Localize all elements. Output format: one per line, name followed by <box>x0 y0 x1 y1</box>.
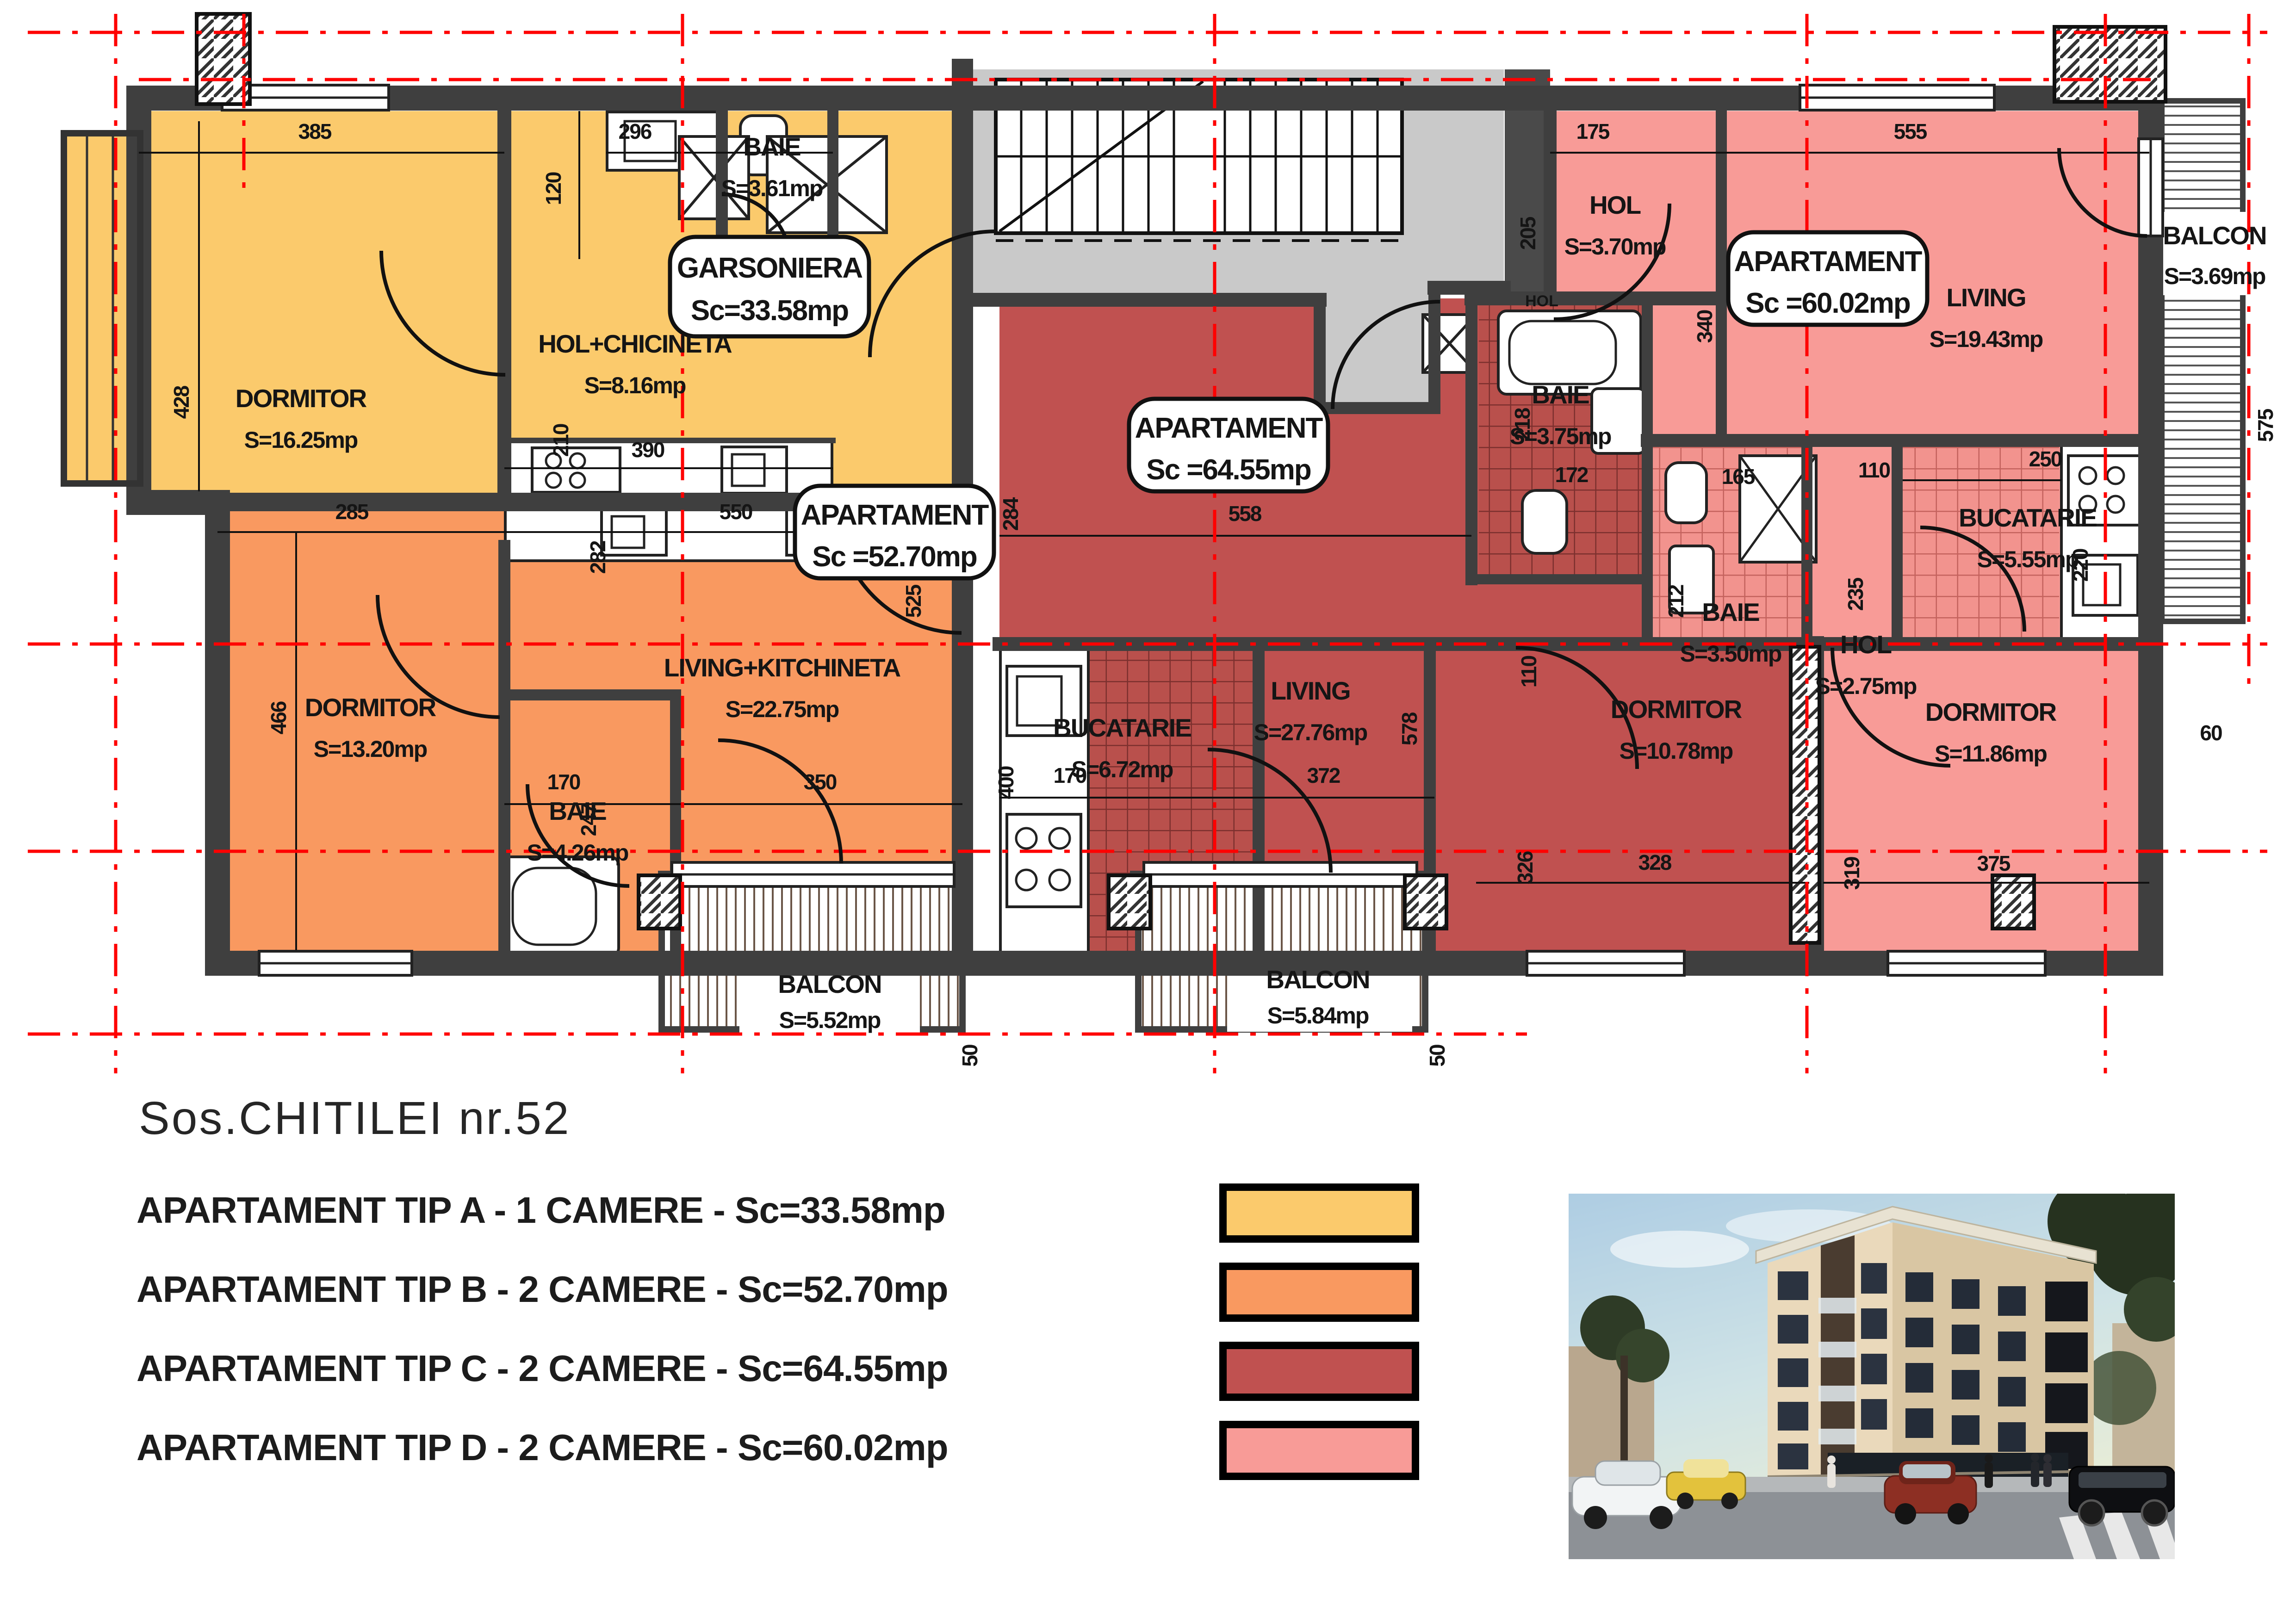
room-area: S=22.75mp <box>726 696 839 722</box>
dimension-label: 555 <box>1894 119 1927 143</box>
dimension-label: 375 <box>1977 851 2011 875</box>
room-area: S=11.86mp <box>1935 741 2047 767</box>
room-label: HOL <box>1840 630 1892 659</box>
room-area: S=8.16mp <box>584 372 686 398</box>
apartment-label: APARTAMENT <box>801 499 989 531</box>
room-label: BAIE <box>743 132 800 161</box>
room-area: S=16.25mp <box>244 427 358 453</box>
dimension-label: 558 <box>1229 502 1262 526</box>
dimension-label: 175 <box>1576 119 1610 143</box>
dimension-label: 235 <box>1843 577 1868 611</box>
dimension-label: 172 <box>1555 463 1588 487</box>
dimension-label: 400 <box>994 766 1018 799</box>
dimension-label: 285 <box>335 500 369 524</box>
dimension-label: 350 <box>804 770 837 794</box>
room-area: S=5.52mp <box>779 1007 881 1033</box>
room-label: DORMITOR <box>1611 695 1742 724</box>
legend-swatch-b <box>1219 1263 1419 1322</box>
legend-row-a: APARTAMENT TIP A - 1 CAMERE - Sc=33.58mp <box>137 1189 1432 1258</box>
room-label: LIVING+KITCHINETA <box>664 653 901 682</box>
legend-swatch-d <box>1219 1421 1419 1480</box>
dimension-label: 50 <box>1425 1045 1449 1067</box>
legend-row-c: APARTAMENT TIP C - 2 CAMERE - Sc=64.55mp <box>137 1347 1432 1417</box>
room-area: S=10.78mp <box>1620 738 1733 764</box>
dimension-label: 390 <box>632 438 664 462</box>
dimension-label: 466 <box>267 701 291 734</box>
apartment-label: APARTAMENT <box>1135 412 1323 444</box>
room-label: BUCATARIE <box>1053 713 1191 742</box>
dimension-label: 385 <box>298 119 332 143</box>
page: { "title": "Sos.CHITILEI nr.52", "legend… <box>0 0 2296 1623</box>
room-label: DORMITOR <box>236 384 367 413</box>
room-area: S=2.75mp <box>1815 673 1917 699</box>
dimension-label: 110 <box>1858 458 1890 482</box>
dimension-label: 578 <box>1397 712 1421 745</box>
dimension-label: 284 <box>999 497 1023 531</box>
dimension-label: 282 <box>586 541 610 574</box>
room-label: BALCON <box>1266 965 1369 994</box>
dimension-label: 428 <box>169 385 193 419</box>
legend-label-a: APARTAMENT TIP A - 1 CAMERE - Sc=33.58mp <box>137 1189 945 1232</box>
dimension-label: 170 <box>1054 763 1086 787</box>
room-label: BALCON <box>778 970 881 998</box>
room-label: BALCON <box>2163 221 2266 250</box>
dimension-label: 328 <box>1638 850 1672 874</box>
dimension-label: 205 <box>1516 217 1540 250</box>
dimension-label: 220 <box>2068 549 2092 582</box>
legend-label-c: APARTAMENT TIP C - 2 CAMERE - Sc=64.55mp <box>137 1347 948 1390</box>
building-render <box>1569 1194 2175 1559</box>
dimension-label: 326 <box>1513 851 1537 884</box>
dimension-label: 340 <box>1693 310 1717 343</box>
legend-row-b: APARTAMENT TIP B - 2 CAMERE - Sc=52.70mp <box>137 1268 1432 1338</box>
dimension-label: 247 <box>577 803 601 836</box>
dimension-label: 170 <box>547 770 580 794</box>
toilet-icon <box>1666 463 1706 523</box>
room-area: S=5.55mp <box>1977 546 2079 572</box>
room-area: S=3.50mp <box>1680 641 1781 667</box>
room-label: HOL+CHICINETA <box>538 329 732 358</box>
toilet-icon <box>1522 490 1567 553</box>
room-area: S=3.61mp <box>721 175 823 201</box>
dimension-label: 575 <box>2253 409 2277 442</box>
dimension-label: 60 <box>2200 721 2222 745</box>
dimension-label: 525 <box>901 584 925 618</box>
dimension-label: 372 <box>1307 763 1340 787</box>
legend-swatch-a <box>1219 1183 1419 1243</box>
dimension-label: 210 <box>549 424 573 457</box>
dimension-label: 250 <box>2029 447 2062 471</box>
room-area: S=3.69mp <box>2164 263 2265 289</box>
apartment-area: Sc =60.02mp <box>1745 287 1910 319</box>
legend-label-b: APARTAMENT TIP B - 2 CAMERE - Sc=52.70mp <box>137 1268 948 1311</box>
floor-plan: DORMITOR S=16.25mp HOL+CHICINETA S=8.16m… <box>0 0 2296 1087</box>
dimension-label: 296 <box>619 119 652 143</box>
room-area: S=27.76mp <box>1254 719 1367 745</box>
room-area: S=3.70mp <box>1564 234 1666 260</box>
dimension-label: 218 <box>1510 408 1534 441</box>
room-label: DORMITOR <box>1925 698 2057 726</box>
room-label: HOL <box>1525 292 1558 310</box>
room-label: DORMITOR <box>305 693 436 722</box>
bathtub-icon <box>501 857 619 956</box>
dimension-label: 50 <box>958 1045 982 1067</box>
legend-swatch-c <box>1219 1342 1419 1401</box>
legend-label-d: APARTAMENT TIP D - 2 CAMERE - Sc=60.02mp <box>137 1426 948 1469</box>
dimension-label: 120 <box>541 172 565 205</box>
room-label: LIVING <box>1271 676 1350 705</box>
room-area: S=4.26mp <box>527 840 628 866</box>
room-label: BAIE <box>1532 380 1589 409</box>
apartment-label: GARSONIERA <box>677 252 863 284</box>
legend-row-d: APARTAMENT TIP D - 2 CAMERE - Sc=60.02mp <box>137 1426 1432 1496</box>
page-title: Sos.CHITILEI nr.52 <box>139 1092 571 1145</box>
room-label: BUCATARIE <box>1959 503 2097 532</box>
dimension-label: 550 <box>720 500 752 524</box>
apartment-area: Sc =52.70mp <box>812 541 977 573</box>
dimension-label: 110 <box>1517 656 1541 688</box>
room-label: HOL <box>1589 191 1641 219</box>
room-area: S=13.20mp <box>314 736 427 762</box>
room-area: S=6.72mp <box>1072 756 1173 782</box>
apartment-area: Sc=33.58mp <box>691 295 848 327</box>
room-label: LIVING <box>1946 283 2025 312</box>
room-area: S=5.84mp <box>1267 1003 1369 1028</box>
room-label: BAIE <box>1702 598 1759 626</box>
apartment-label: APARTAMENT <box>1734 246 1923 278</box>
dimension-label: 165 <box>1722 465 1755 489</box>
dimension-label: 319 <box>1840 857 1864 890</box>
dimension-label: 212 <box>1664 585 1688 618</box>
room-area: S=19.43mp <box>1930 326 2043 352</box>
apartment-area: Sc =64.55mp <box>1146 454 1311 486</box>
